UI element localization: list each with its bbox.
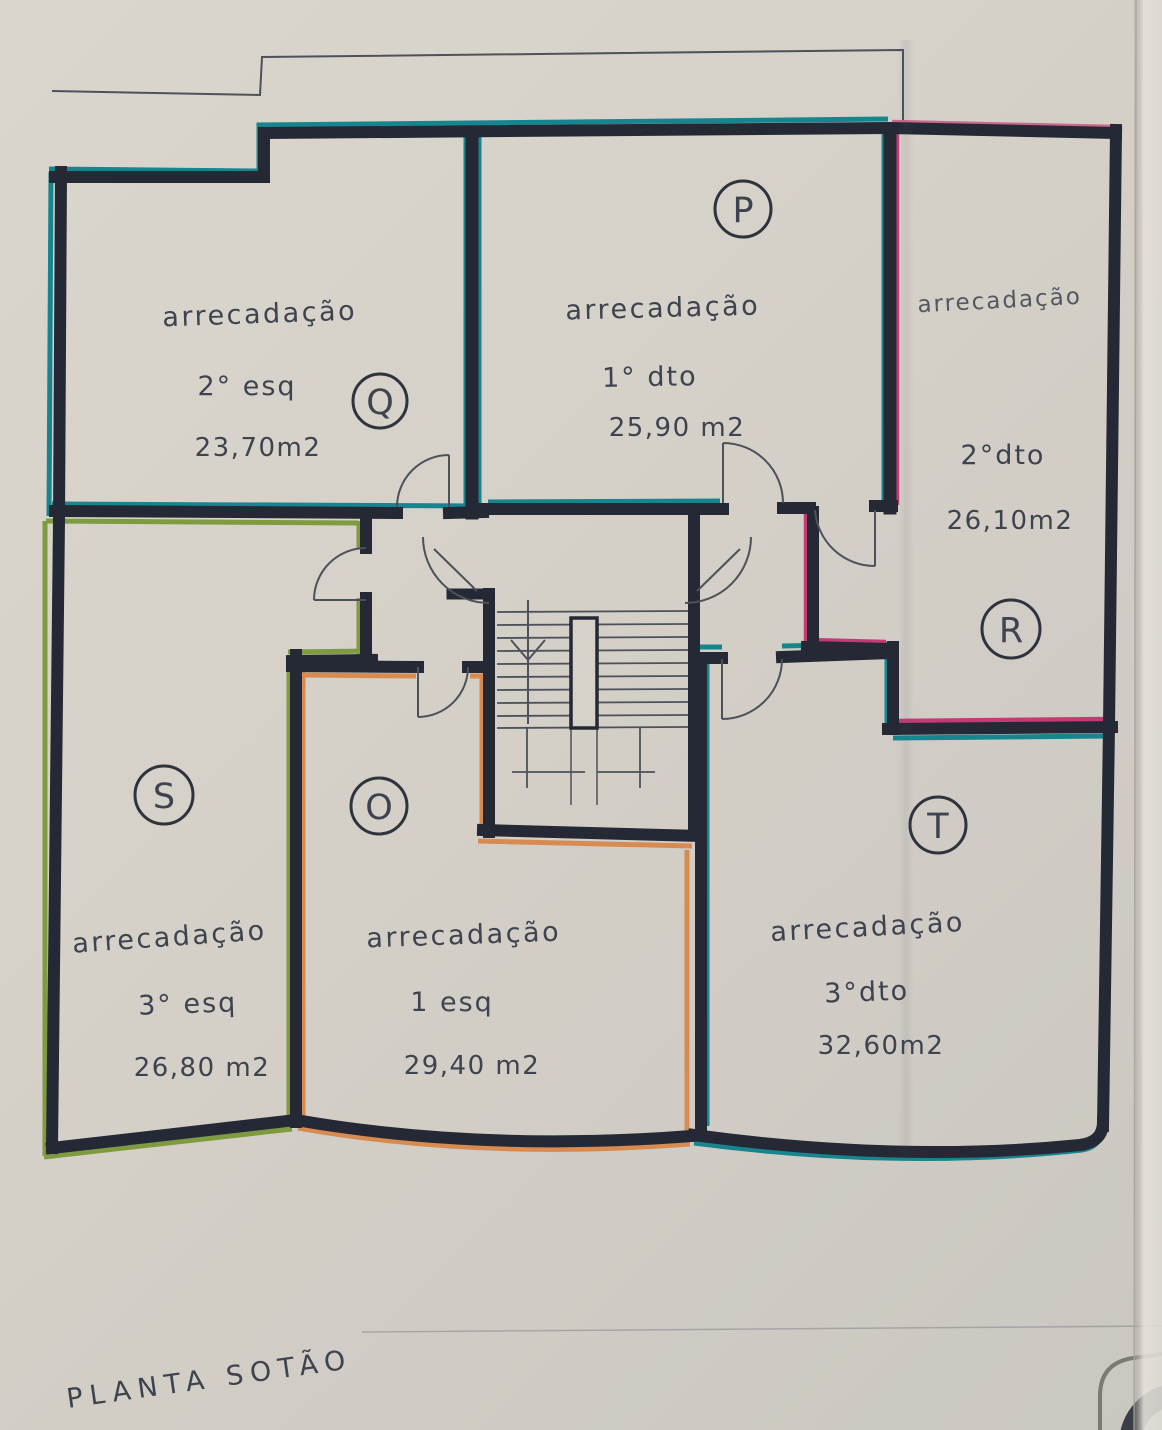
room-label-r: arrecadação 2°dto 26,10m2 R xyxy=(917,284,1083,658)
room-letter-s: S xyxy=(153,777,175,817)
room-name-t: arrecadação xyxy=(769,907,965,948)
room-name-o: arrecadação xyxy=(366,917,562,955)
room-area-r: 26,10m2 xyxy=(947,506,1074,536)
pink-r-bottom xyxy=(893,719,1110,721)
wall-r-notch xyxy=(807,512,890,649)
door-s xyxy=(314,548,366,600)
room-area-t: 32,60m2 xyxy=(818,1031,945,1061)
door-r xyxy=(815,510,875,566)
plan-title: PLANTA SOTÃO xyxy=(65,1343,355,1415)
room-unit-p: 1° dto xyxy=(602,361,698,394)
paper-crease-middle xyxy=(898,40,914,1160)
room-unit-t: 3°dto xyxy=(824,976,910,1010)
wall-right xyxy=(1103,130,1116,1126)
teal-r-bottom-under xyxy=(893,736,1110,738)
plan-title-block: PLANTA SOTÃO xyxy=(65,1326,1162,1415)
wall-o-top xyxy=(292,666,489,667)
door-t xyxy=(722,659,782,719)
room-unit-s: 3° esq xyxy=(138,987,238,1021)
teal-left-run xyxy=(49,172,51,516)
room-label-t: T arrecadação 3°dto 32,60m2 xyxy=(769,797,966,1061)
stair-stringer-guides xyxy=(571,728,597,805)
paper-fold-right xyxy=(1134,0,1162,1430)
room-name-s: arrecadação xyxy=(71,915,267,960)
room-area-s: 26,80 m2 xyxy=(134,1053,271,1083)
wall-p-bottom xyxy=(483,506,892,509)
roof-outline xyxy=(52,50,903,120)
room-unit-o: 1 esq xyxy=(410,987,494,1018)
teal-p-bottom xyxy=(488,501,720,502)
door-p xyxy=(723,443,783,503)
room-letter-p: P xyxy=(732,191,753,231)
door-q xyxy=(397,455,449,507)
room-unit-q: 2° esq xyxy=(197,371,296,402)
floor-plan-scan: P arrecadação 1° dto 25,90 m2 arrecadaçã… xyxy=(0,0,1162,1430)
stair-direction-arrow xyxy=(511,600,545,724)
wall-q-bottom xyxy=(55,511,483,513)
room-name-q: arrecadação xyxy=(162,296,358,334)
room-name-p: arrecadação xyxy=(565,290,761,326)
room-label-q: arrecadação 2° esq Q 23,70m2 xyxy=(162,296,407,463)
room-unit-r: 2°dto xyxy=(961,440,1046,471)
accent-pink xyxy=(806,121,1114,721)
wall-stair-bottom xyxy=(483,830,700,836)
room-area-q: 23,70m2 xyxy=(195,433,322,463)
wall-left xyxy=(52,172,61,1148)
orange-o-top xyxy=(303,675,484,676)
plan-drawing: P arrecadação 1° dto 25,90 m2 arrecadaçã… xyxy=(0,0,1162,1430)
green-s-top xyxy=(46,521,358,523)
room-area-p: 25,90 m2 xyxy=(609,413,746,443)
room-label-p: P arrecadação 1° dto 25,90 m2 xyxy=(565,181,771,443)
wall-t-top xyxy=(694,653,890,658)
roof-outline-path xyxy=(52,50,903,120)
room-letter-t: T xyxy=(926,807,949,847)
room-label-s: S arrecadação 3° esq 26,80 m2 xyxy=(71,766,270,1083)
room-label-o: O arrecadação 1 esq 29,40 m2 xyxy=(351,778,562,1081)
room-letter-o: O xyxy=(365,788,393,828)
orange-stair-bottom xyxy=(478,841,692,846)
room-area-o: 29,40 m2 xyxy=(404,1051,541,1081)
stair-stringer xyxy=(571,618,597,728)
stair-lower-flight xyxy=(512,728,655,788)
door-o xyxy=(418,667,468,717)
room-name-r: arrecadação xyxy=(917,284,1083,319)
room-letter-r: R xyxy=(999,611,1023,651)
wall-r-bottom xyxy=(888,727,1112,729)
title-underline xyxy=(362,1326,1162,1332)
room-letter-q: Q xyxy=(366,383,394,423)
